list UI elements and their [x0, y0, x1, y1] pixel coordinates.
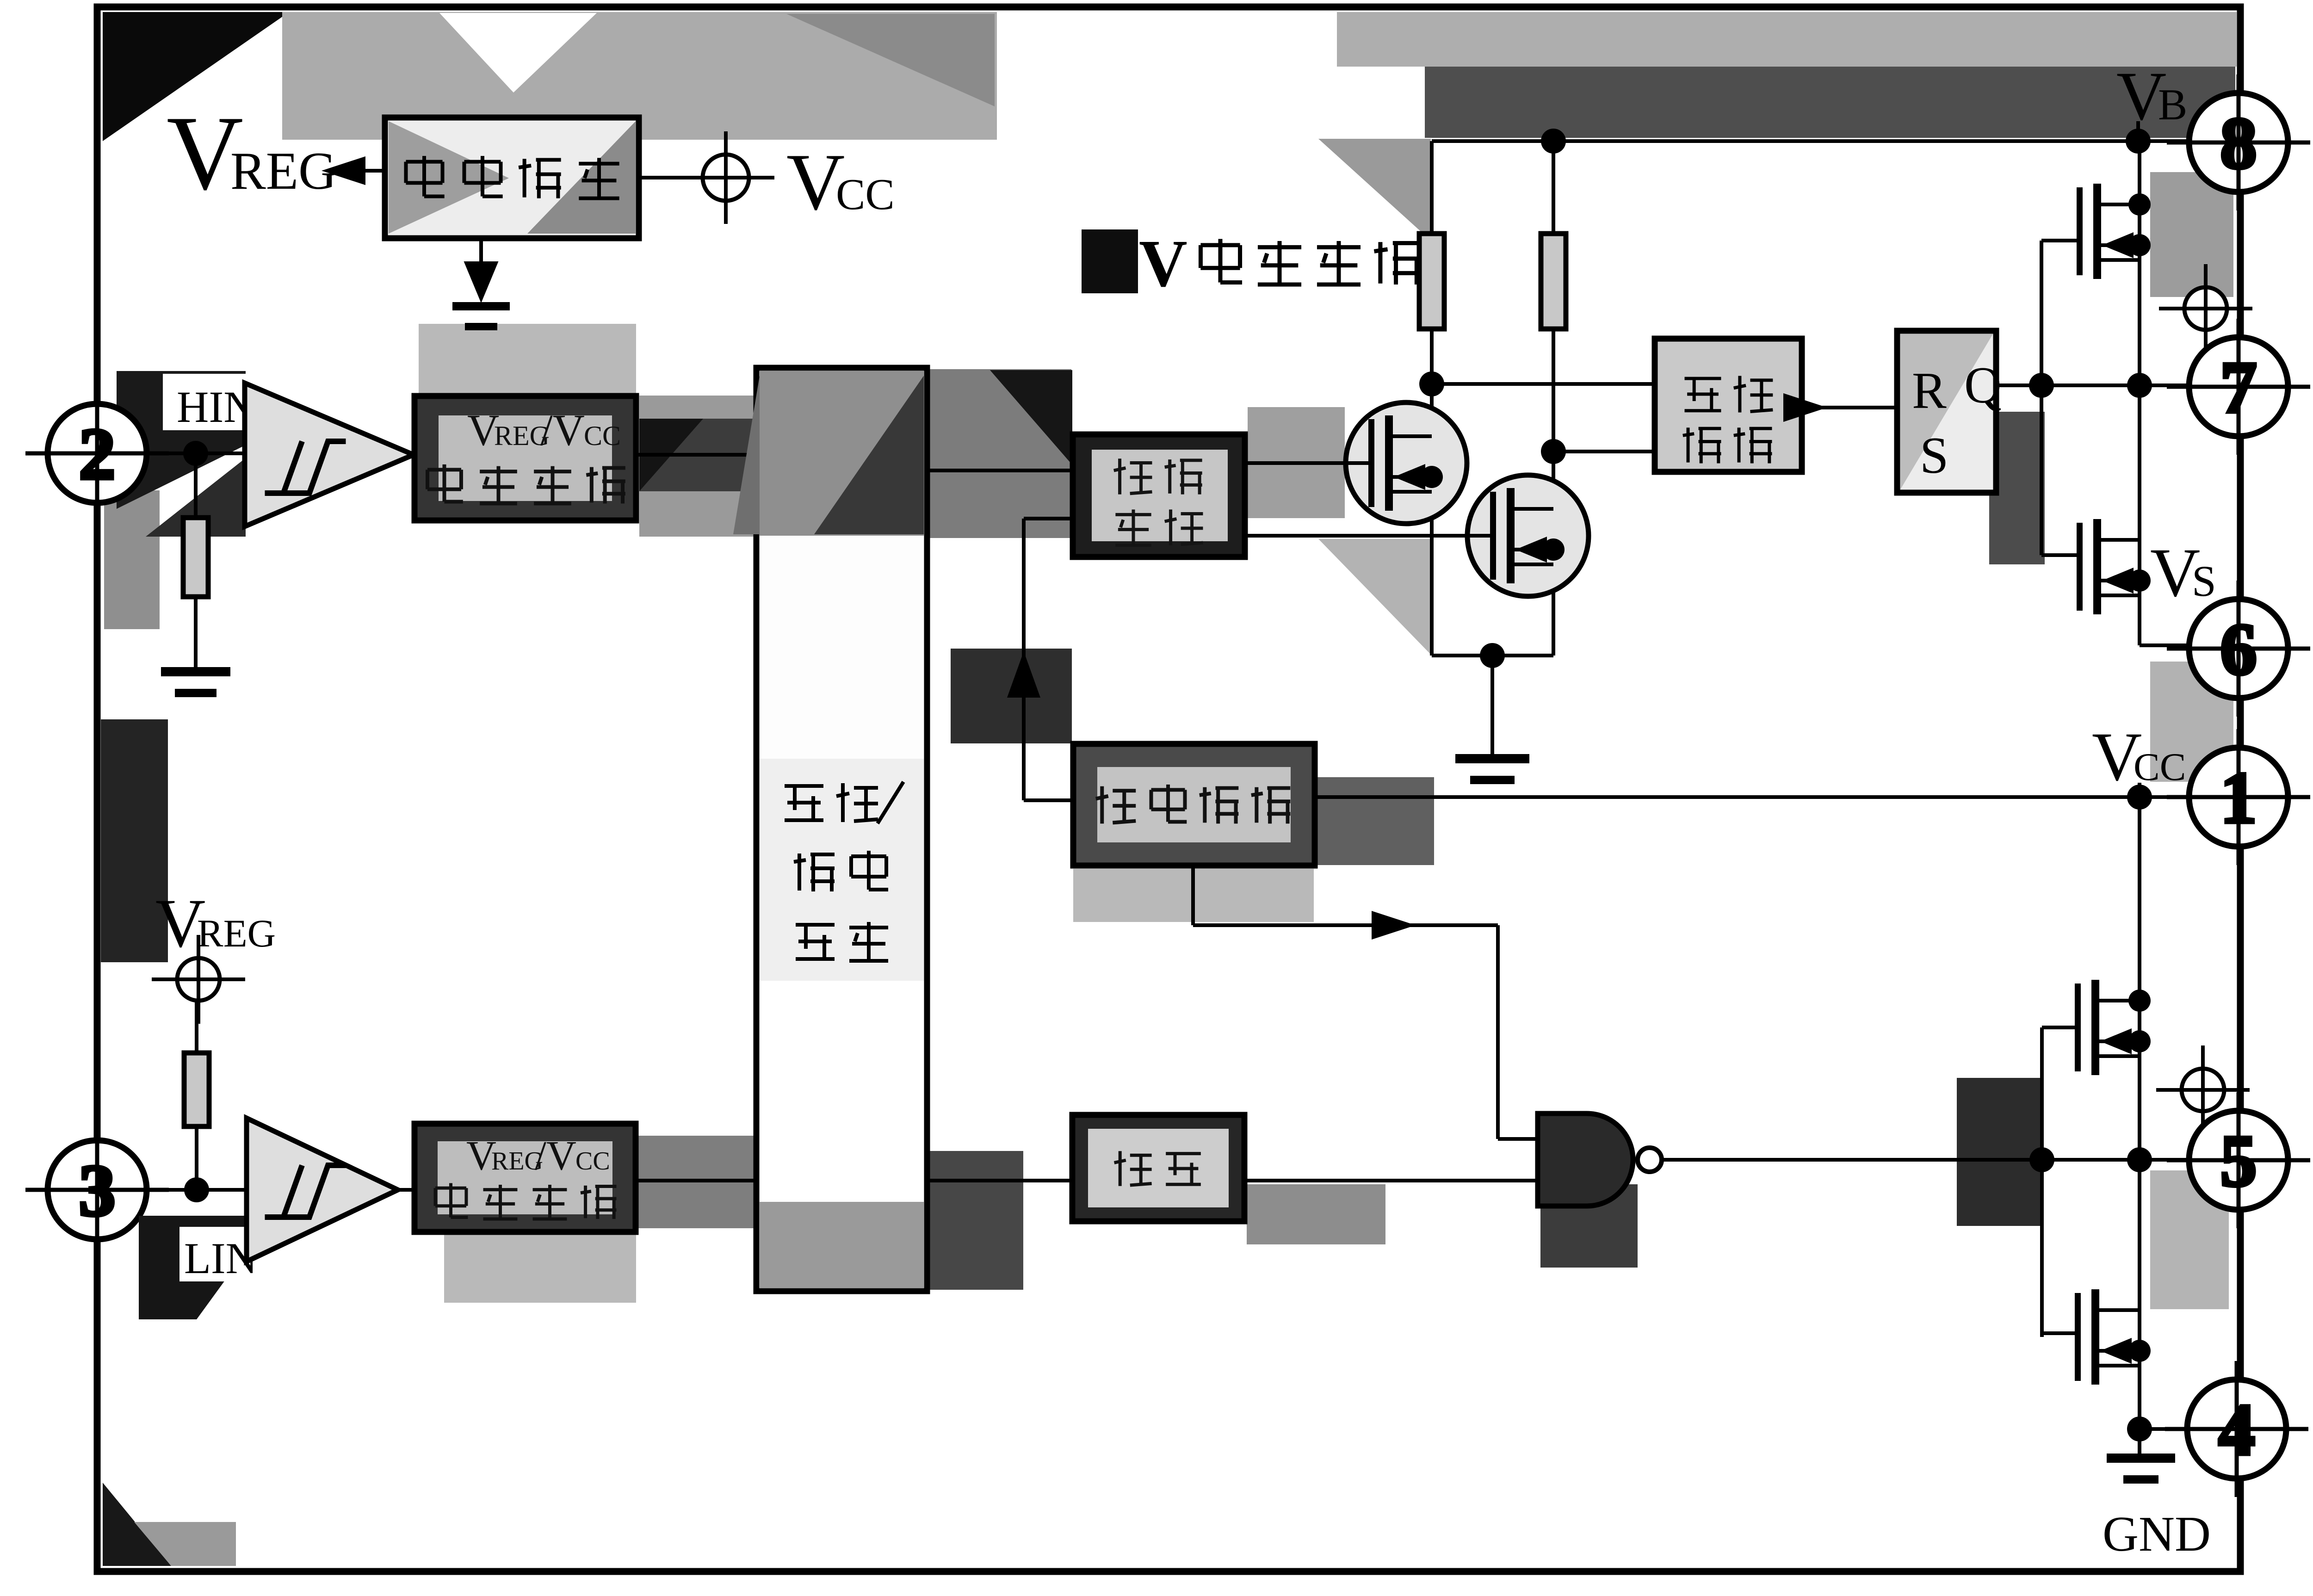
svg-text:R: R [1912, 362, 1947, 420]
svg-text:2: 2 [79, 413, 116, 495]
svg-text:CC: CC [2134, 745, 2186, 789]
svg-text:S: S [2192, 557, 2216, 606]
svg-text:8: 8 [2220, 102, 2257, 184]
svg-text:7: 7 [2220, 346, 2257, 428]
svg-text:CC: CC [584, 421, 621, 451]
svg-text:CC: CC [836, 170, 895, 219]
svg-text:Q: Q [1964, 357, 2002, 414]
svg-text:GND: GND [2103, 1507, 2211, 1562]
svg-text:CC: CC [575, 1147, 610, 1175]
svg-text:1: 1 [2220, 756, 2257, 839]
svg-text:/V: /V [540, 405, 585, 455]
svg-text:3: 3 [79, 1149, 116, 1231]
svg-text:REG: REG [230, 142, 337, 200]
svg-text:4: 4 [2218, 1388, 2255, 1471]
svg-text:6: 6 [2220, 608, 2257, 690]
svg-text:B: B [2158, 80, 2187, 129]
svg-text:/V: /V [535, 1133, 576, 1179]
svg-text:REG: REG [197, 912, 276, 955]
svg-text:V: V [1139, 227, 1187, 301]
svg-text:S: S [1920, 427, 1948, 484]
svg-text:5: 5 [2220, 1120, 2257, 1202]
